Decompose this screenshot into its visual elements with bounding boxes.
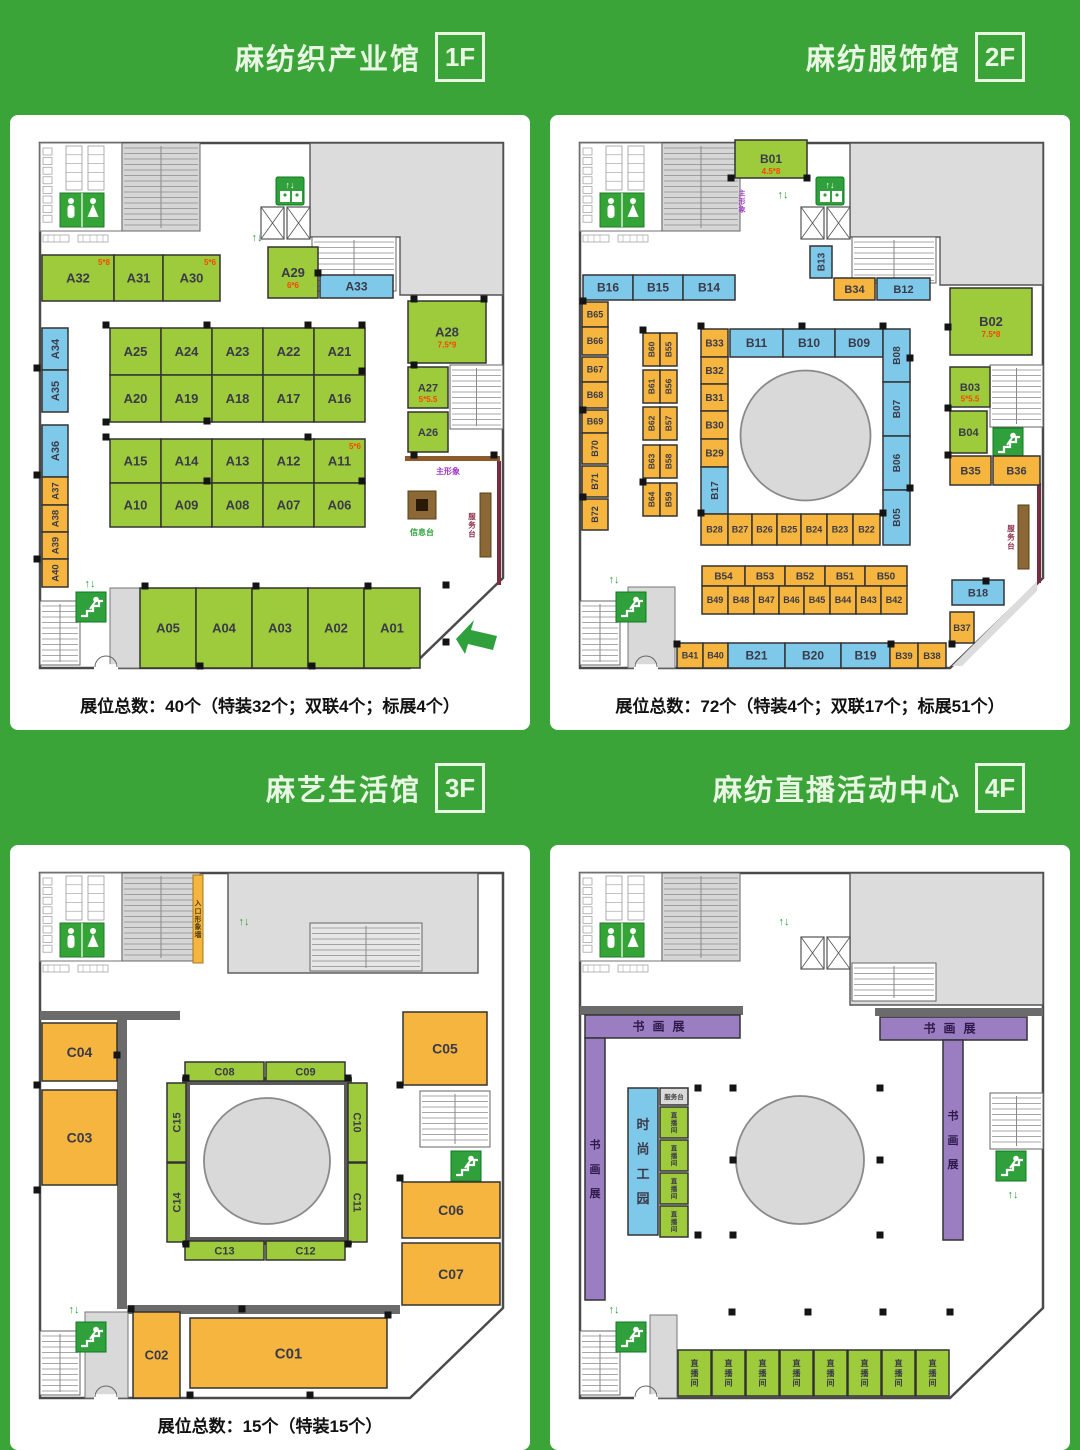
floor-title-1f: 麻纺织产业馆 [235,36,421,78]
stairs [662,873,740,961]
booth-label: C04 [67,1044,93,1060]
booth-size-label: 5*5.5 [961,395,980,404]
floorplan-panel-2f: ↑↓B014.5*8B16B15B14B13B34B12B027.5*8B035… [550,115,1070,730]
booth-label: A33 [345,280,367,294]
pillar [187,1392,194,1399]
pillar [142,583,149,590]
booth-label: B38 [923,651,940,662]
floor-badge-1f: 1F [435,32,485,82]
map-annotation: ↑↓ [609,574,620,586]
feature-wall [1037,483,1041,583]
booth-label: B51 [836,572,855,583]
booth-label: B44 [835,595,852,605]
floor-title-4f: 麻纺直播活动中心 [713,767,961,809]
booth-label: B60 [646,341,656,357]
exit-stairs-icon [616,592,646,622]
pillar [365,583,372,590]
booth-label: C12 [295,1245,315,1257]
booth-label: B59 [663,491,673,507]
map-annotation: ↑↓ [252,232,263,244]
booth-label: B35 [960,465,980,477]
map-annotation: 主形象 [739,188,746,213]
pillar [34,1187,41,1194]
atrium-circle [736,1096,864,1224]
pillar [359,478,366,485]
map-annotation: ↑↓ [779,916,790,928]
pillar [877,1157,884,1164]
booth-count-caption-3f: 展位总数：15个（特装15个） [10,1412,530,1437]
booth-label: B71 [590,473,600,490]
booth-size-label: 4.5*8 [762,167,781,176]
booth-label: B25 [781,525,798,535]
pillar [947,1309,954,1316]
booth-label: A04 [212,621,237,636]
booth-count-caption-2f: 展位总数：72个（特装4个；双联17个；标展51个） [550,692,1070,717]
map-annotation: ↑↓ [1008,1189,1019,1201]
booth-label: A01 [380,621,404,636]
booth-label: B45 [809,595,826,605]
booth-label: 直播间 [895,1358,904,1387]
wc-icon [600,923,644,957]
door-gap [634,664,658,671]
pillar [34,365,41,372]
booth-size-label: 6*6 [287,281,300,290]
map-annotation: 服务台 [468,512,476,538]
pillar [305,322,312,329]
booth-label: A06 [328,498,352,513]
map-annotation: ↑↓ [609,1304,620,1316]
booth-label: B66 [587,336,604,346]
pillar [397,1175,404,1182]
booth-label: B49 [707,595,724,605]
booth-label: 直播间 [759,1358,768,1387]
pillar [805,1309,812,1316]
booth-label: A16 [328,391,352,406]
pillar [307,1392,314,1399]
pillar [34,472,41,479]
booth-size-label: 5*8 [98,258,111,267]
pillar [698,323,705,330]
floor-header-3f: 麻艺生活馆 3F [10,757,530,819]
booth-label: C03 [67,1129,93,1145]
booth-label: B23 [832,525,849,535]
pillar [877,1085,884,1092]
booth-label: B24 [806,525,823,535]
pillar [730,1232,737,1239]
map-annotation: ↑↓ [778,189,789,201]
booth-label: A32 [66,271,90,286]
booth-label: A27 [418,382,438,394]
pillar [877,1232,884,1239]
booth-label: A19 [175,391,199,406]
floorplan-panel-1f: ↑↓A325*8A31A305*6A296*6A33A287.5*9A275*5… [10,115,530,730]
booth-label: A35 [50,381,62,401]
booth-时尚工园 [628,1088,658,1235]
booth-label: C14 [171,1192,183,1213]
booth-label: A34 [50,338,62,359]
pillar [359,368,366,375]
booth-size-label: 5*5.5 [419,395,438,404]
booth-label: A12 [277,454,301,469]
booth-label: A40 [50,564,61,581]
pillar [34,1082,41,1089]
floorplan-panel-4f: 书画展书画展书画展书画展时尚工园服务台直播间直播间直播间直播间直播间直播间直播间… [550,845,1070,1450]
restroom-area [580,873,662,972]
booth-label: B33 [705,339,724,350]
pillar [397,1082,404,1089]
pillar [698,510,705,517]
booth-label: 直播间 [827,1358,836,1387]
pillar [345,1241,352,1248]
booth-label: B50 [877,572,896,583]
pillar [197,663,204,670]
booth-label: A28 [435,325,459,340]
booth-label: B08 [892,346,903,365]
booth-label: B15 [647,281,669,295]
booth-label: B63 [646,453,656,469]
exit-stairs-icon [993,428,1023,458]
booth-label: A21 [328,344,352,359]
booth-label: 直播间 [793,1358,802,1387]
pillar [309,663,316,670]
restroom-area [40,143,122,242]
pillar [983,578,990,585]
pillar [799,323,806,330]
booth-label: 书画展 [632,1019,692,1034]
pillar [443,582,450,589]
booth-label: 直播间 [861,1358,870,1387]
pillar [411,296,418,303]
booth-label: A31 [127,271,151,286]
pillar [880,510,887,517]
booth-label: B43 [860,595,877,605]
stairs [40,601,80,665]
booth-label: C09 [295,1066,315,1078]
booth-size-label: 7.5*9 [438,340,457,349]
booth-label: B56 [663,378,673,394]
booth-label: B41 [682,651,699,661]
stairs [40,1331,80,1395]
floor-title-2f: 麻纺服饰馆 [806,36,961,78]
booth-label: C10 [351,1112,363,1132]
pillar [359,322,366,329]
pillar [305,434,312,441]
booth-label: A15 [124,454,148,469]
booth-label: A36 [50,441,62,461]
counter-fixture [583,235,609,242]
pillar [949,641,956,648]
info-desk [408,491,436,519]
pillar [183,1241,190,1248]
pillar [695,1232,702,1239]
booth-label: B19 [854,649,876,663]
pillar [730,1157,737,1164]
booth-label: B58 [663,453,673,469]
floor-badge-2f: 2F [975,32,1025,82]
pillar [695,1085,702,1092]
booth-label: A38 [50,510,61,527]
feature-wall [405,456,500,461]
pillar [640,327,647,334]
door-gap [634,1394,658,1401]
booth-label: A37 [50,482,61,499]
booth-label: 直播间 [671,1177,678,1200]
door-gap [94,1394,118,1401]
booth-label: A29 [281,265,305,280]
map-annotation: 主形象 [436,466,460,476]
pillar [34,556,41,563]
map-annotation: ↑↓ [69,1304,80,1316]
pillar [345,1075,352,1082]
booth-label: B07 [892,399,903,418]
booth-label: C08 [214,1066,234,1078]
booth-label: A24 [175,344,200,359]
booth-label: B30 [705,421,724,432]
booth-label: A05 [156,621,180,636]
booth-label: B40 [707,651,724,661]
booth-label: C01 [275,1345,303,1362]
map-annotation: 信息台 [410,527,434,537]
pillar [183,1075,190,1082]
floorplan-panel-3f: C04C03C05C06C07C02C01C08C09C15C14C10C11C… [10,845,530,1450]
exit-stairs-icon [996,1151,1026,1181]
exit-stairs-icon [616,1322,646,1352]
pillar [103,434,110,441]
stairs [310,923,422,971]
stairs [662,143,740,231]
map-annotation: ↑↓ [239,916,250,928]
pillar [204,478,211,485]
booth-label: B27 [732,525,749,535]
booth-label: B65 [587,310,604,320]
booth-label: B14 [698,281,720,295]
booth-label: B29 [705,449,724,460]
booth-label: C13 [214,1245,234,1257]
booth-label: B53 [756,572,775,583]
counter-fixture [583,965,609,972]
pillar [239,1306,246,1313]
pillar [580,407,587,414]
booth-label: C11 [351,1193,363,1213]
pillar [580,298,587,305]
floor-header-2f: 麻纺服饰馆 2F [550,26,1070,88]
floor-badge-4f: 4F [975,763,1025,813]
booth-label: C15 [171,1112,183,1132]
booth-label: B09 [848,336,870,350]
booth-label: A02 [324,621,348,636]
booth-label: B42 [886,595,903,605]
escalator-arrows: ↑↓ [286,180,295,190]
floorplan-3f: C04C03C05C06C07C02C01C08C09C15C14C10C11C… [10,845,530,1450]
exit-stairs-icon [451,1151,481,1181]
service-desk [1018,505,1029,569]
booth-label: B28 [706,525,723,535]
exit-stairs-icon [76,1322,106,1352]
exit-stairs-icon [76,592,106,622]
restroom-area [580,143,662,242]
stairs [450,365,503,429]
wc-icon [600,193,644,227]
escalator-icon: ↑↓ [816,177,844,205]
booth-label: B62 [646,415,656,431]
booth-label: B10 [798,336,820,350]
booth-label: C06 [438,1202,464,1218]
booth-count-caption-1f: 展位总数：40个（特装32个；双联4个；标展4个） [10,692,530,717]
booth-label: B39 [895,651,912,662]
wc-icon [60,193,104,227]
booth-label: B11 [746,336,768,350]
restroom-area [40,873,122,972]
booth-label: 直播间 [929,1358,938,1387]
pillar [253,583,260,590]
wc-icon [60,923,104,957]
pillar [907,485,914,492]
pillar [411,452,418,459]
pillar [103,322,110,329]
booth-size-label: 5*6 [204,258,217,267]
booth-label: A10 [124,498,148,513]
booth-label: B52 [796,572,815,583]
booth-size-label: 5*6 [349,442,362,451]
pillar [730,1085,737,1092]
stairs [122,873,200,961]
pillar [103,419,110,426]
booth-label: B20 [802,649,824,663]
counter-fixture [618,235,648,242]
map-annotation: ↑↓ [85,578,96,590]
booth-label: 直播间 [671,1144,678,1167]
escalator-icon: ↑↓ [276,177,304,205]
service-room [650,1315,677,1398]
booth-label: B04 [958,427,979,439]
booth-label: A22 [277,344,301,359]
booth-label: B55 [663,341,673,357]
pillar [385,1312,392,1319]
booth-label: B61 [646,378,656,394]
wall-band [40,1011,180,1020]
booth-label: B69 [587,417,604,427]
booth-label: A30 [180,271,204,286]
booth-label: A07 [277,498,301,513]
booth-label: B17 [710,481,721,500]
booth-label: B05 [892,508,903,527]
counter-fixture [43,235,69,242]
booth-label: B46 [783,595,800,605]
map-annotation: 入口形象墙 [195,900,202,939]
booth-label: A09 [175,498,199,513]
booth-label: A20 [124,391,148,406]
booth-label: 书画展 [947,1109,960,1171]
booth-label: 服务台 [664,1092,684,1101]
booth-size-label: 7.5*8 [982,330,1001,339]
pillar [128,1306,135,1313]
stairs [580,601,620,665]
pillar [945,324,952,331]
booth-label: B26 [756,525,773,535]
pillar [580,494,587,501]
booth-label: B06 [892,453,903,472]
pillar [728,175,735,182]
booth-label: A03 [268,621,292,636]
booth-label: B18 [968,587,988,599]
pillar [945,452,952,459]
booth-label: B54 [714,572,733,583]
booth-label: 书画展 [923,1021,983,1036]
booth-label: B22 [858,525,875,535]
floor-badge-3f: 3F [435,763,485,813]
pillar [674,641,681,648]
pillar [880,323,887,330]
booth-label: B21 [745,649,767,663]
pillar [888,641,895,648]
booth-label: B48 [733,595,750,605]
booth-label: A26 [418,427,438,439]
pillar [640,479,647,486]
pillar [204,418,211,425]
pillar [114,1052,121,1059]
pillar [945,405,952,412]
booth-label: B47 [758,595,775,605]
stairs [990,1093,1043,1149]
pillar [204,322,211,329]
wall-band [580,1006,743,1015]
door-gap [94,664,118,671]
floorplan-4f: 书画展书画展书画展书画展时尚工园服务台直播间直播间直播间直播间直播间直播间直播间… [550,845,1070,1450]
floor-header-1f: 麻纺织产业馆 1F [10,26,530,88]
booth-label: B37 [953,623,970,634]
booth-label: B13 [817,252,828,271]
floorplan-1f: ↑↓A325*8A31A305*6A296*6A33A287.5*9A275*5… [10,115,530,730]
service-desk [480,493,491,557]
booth-label: B16 [597,281,619,295]
pillar [481,296,488,303]
entrance-arrow [456,620,497,654]
booth-label: A18 [226,391,250,406]
booth-label: B68 [587,390,604,400]
stairs [122,143,200,231]
counter-fixture [78,235,108,242]
booth-label: B12 [893,284,913,296]
pillar [443,639,450,646]
atrium-circle [204,1098,330,1224]
booth-label: B31 [705,393,724,404]
booth-label: A39 [50,537,61,554]
booth-label: B70 [590,440,600,457]
feature-wall [497,461,501,585]
stairs [852,237,936,283]
booth-label: B32 [705,366,724,377]
service-room [110,588,140,668]
atrium-circle [741,371,871,501]
pillar [491,452,498,459]
stairs [580,1331,620,1395]
floor-header-4f: 麻纺直播活动中心 4F [550,757,1070,819]
booth-label: B36 [1006,465,1026,477]
booth-label: A11 [328,454,351,469]
wall-band [117,1020,127,1309]
counter-fixture [618,965,648,972]
booth-label: A25 [124,344,148,359]
booth-label: B64 [646,491,656,507]
booth-label: A23 [226,344,250,359]
booth-label: B57 [663,415,673,431]
booth-label: A08 [226,498,250,513]
floorplan-2f: ↑↓B014.5*8B16B15B14B13B34B12B027.5*8B035… [550,115,1070,730]
map-annotation: 服务台 [1007,524,1015,550]
wall-band [875,1008,1043,1016]
booth-label: 直播间 [671,1210,678,1233]
booth-label: 书画展 [589,1138,602,1200]
